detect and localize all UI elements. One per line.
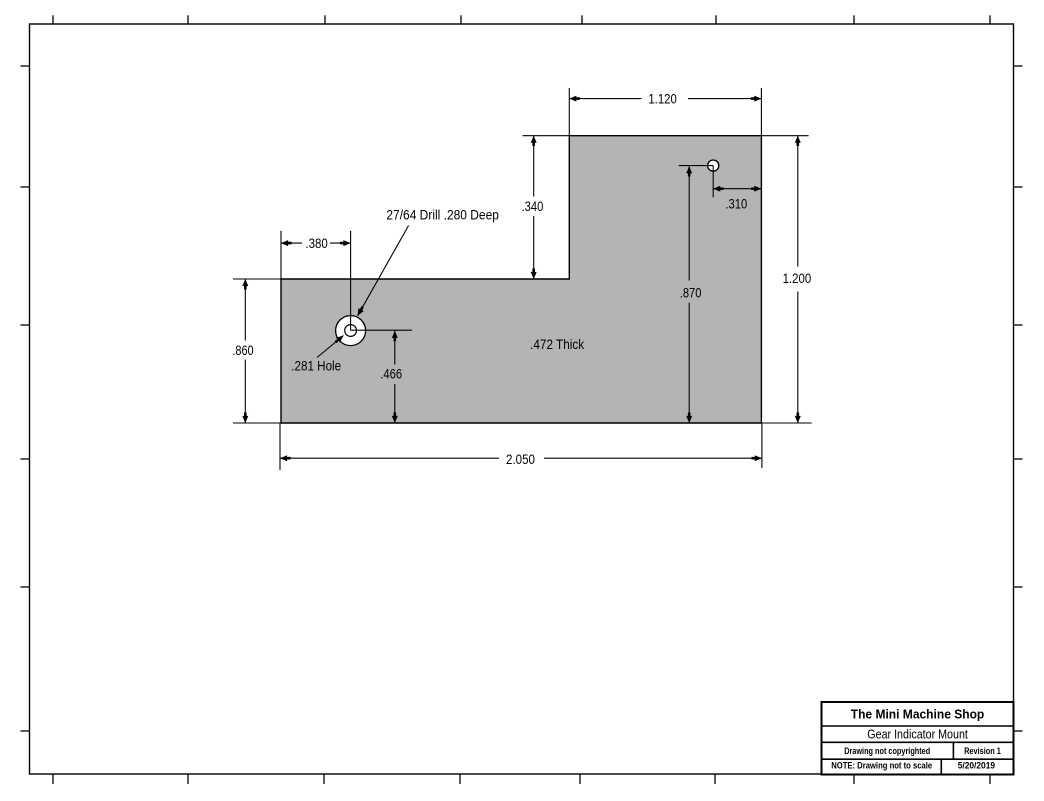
svg-text:.310: .310 xyxy=(725,197,747,212)
svg-text:5/20/2019: 5/20/2019 xyxy=(958,760,995,771)
svg-text:27/64 Drill .280 Deep: 27/64 Drill .280 Deep xyxy=(386,208,499,223)
svg-text:Drawing not copyrighted: Drawing not copyrighted xyxy=(844,746,930,757)
svg-text:Gear Indicator Mount: Gear Indicator Mount xyxy=(867,728,968,742)
svg-text:NOTE: Drawing not to scale: NOTE: Drawing not to scale xyxy=(831,760,932,771)
svg-text:.472 Thick: .472 Thick xyxy=(530,337,584,352)
svg-text:.870: .870 xyxy=(680,285,702,300)
svg-text:.466: .466 xyxy=(380,366,402,381)
svg-text:The Mini Machine Shop: The Mini Machine Shop xyxy=(851,706,985,721)
svg-text:.281 Hole: .281 Hole xyxy=(291,359,341,374)
svg-text:.380: .380 xyxy=(305,236,327,251)
svg-text:.860: .860 xyxy=(232,343,253,358)
svg-text:1.200: 1.200 xyxy=(783,271,812,286)
svg-text:.340: .340 xyxy=(522,199,544,214)
svg-text:2.050: 2.050 xyxy=(506,452,535,467)
svg-text:1.120: 1.120 xyxy=(648,92,677,107)
svg-text:Revision 1: Revision 1 xyxy=(964,746,1001,757)
